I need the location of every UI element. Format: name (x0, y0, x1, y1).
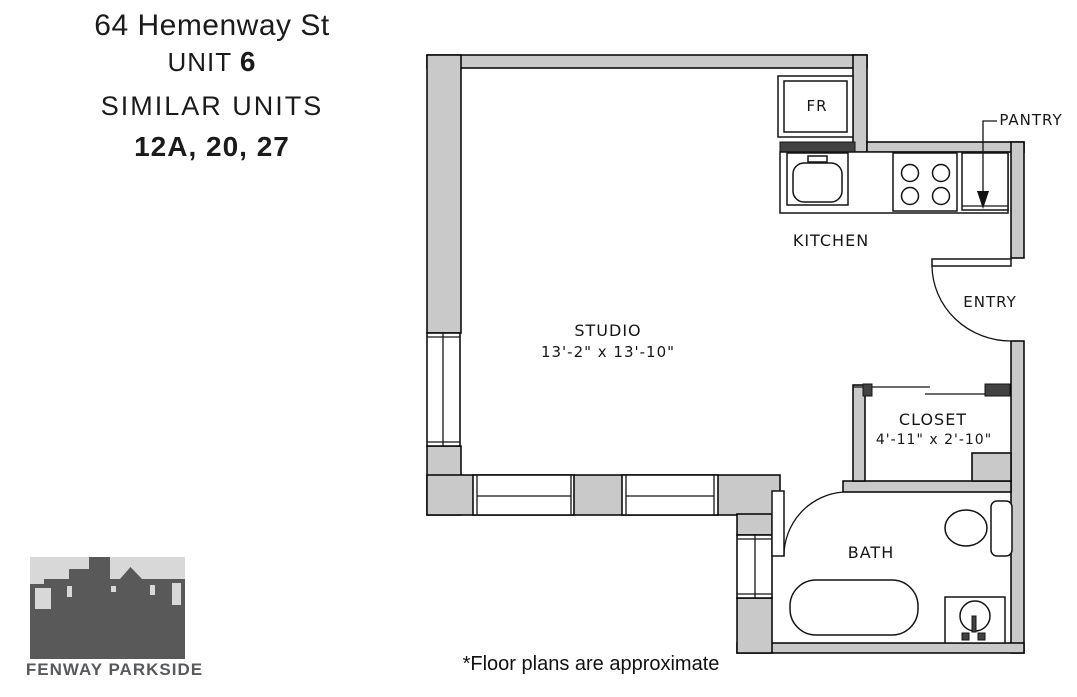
pantry-label: PANTRY (999, 111, 1062, 129)
closet-left-wall (853, 385, 865, 481)
bath-left-wall-upper (737, 514, 772, 535)
kitchen-sink (787, 153, 848, 205)
disclaimer-note: *Floor plans are approximate (421, 653, 761, 676)
kitchen-label: KITCHEN (793, 231, 869, 250)
closet-doors (853, 384, 1010, 396)
bath-label: BATH (848, 543, 894, 562)
fenway-parkside-logo (30, 557, 185, 659)
fridge-label: FR (806, 97, 827, 115)
bathtub (790, 580, 918, 635)
closet-dimensions: 4'-11" x 2'-10" (876, 432, 992, 448)
bath-door (772, 491, 843, 556)
left-wall-upper (427, 55, 461, 333)
counter-dark-section (780, 142, 855, 152)
fridge-step-wall (853, 55, 867, 152)
bath-bottom-wall (737, 643, 1024, 653)
kitchen-top-wall (867, 142, 1024, 152)
bottom-window-1 (473, 475, 574, 515)
left-window (427, 333, 460, 446)
bottom-window-2 (622, 475, 718, 515)
top-wall (427, 55, 867, 68)
logo-caption: FENWAY PARKSIDE (12, 660, 217, 680)
studio-dimensions: 13'-2" x 13'-10" (541, 343, 675, 361)
vanity-sink (945, 597, 1005, 643)
toilet (945, 501, 1012, 556)
right-wall-upper (1011, 142, 1024, 258)
closet-label: CLOSET (899, 410, 967, 429)
stove (893, 153, 957, 211)
city-skyline-icon (30, 557, 185, 659)
bath-left-wall-lower (737, 598, 772, 653)
bath-window (737, 535, 772, 598)
flyer-canvas: 64 Hemenway St UNIT 6 SIMILAR UNITS 12A,… (0, 0, 1077, 697)
studio-label: STUDIO (574, 321, 641, 340)
bath-top-wall (843, 481, 1011, 492)
right-wall-lower (1011, 341, 1024, 653)
entry-label: ENTRY (963, 293, 1017, 311)
closet-chase (972, 453, 1011, 481)
walls (427, 55, 1024, 653)
windows (427, 333, 772, 598)
